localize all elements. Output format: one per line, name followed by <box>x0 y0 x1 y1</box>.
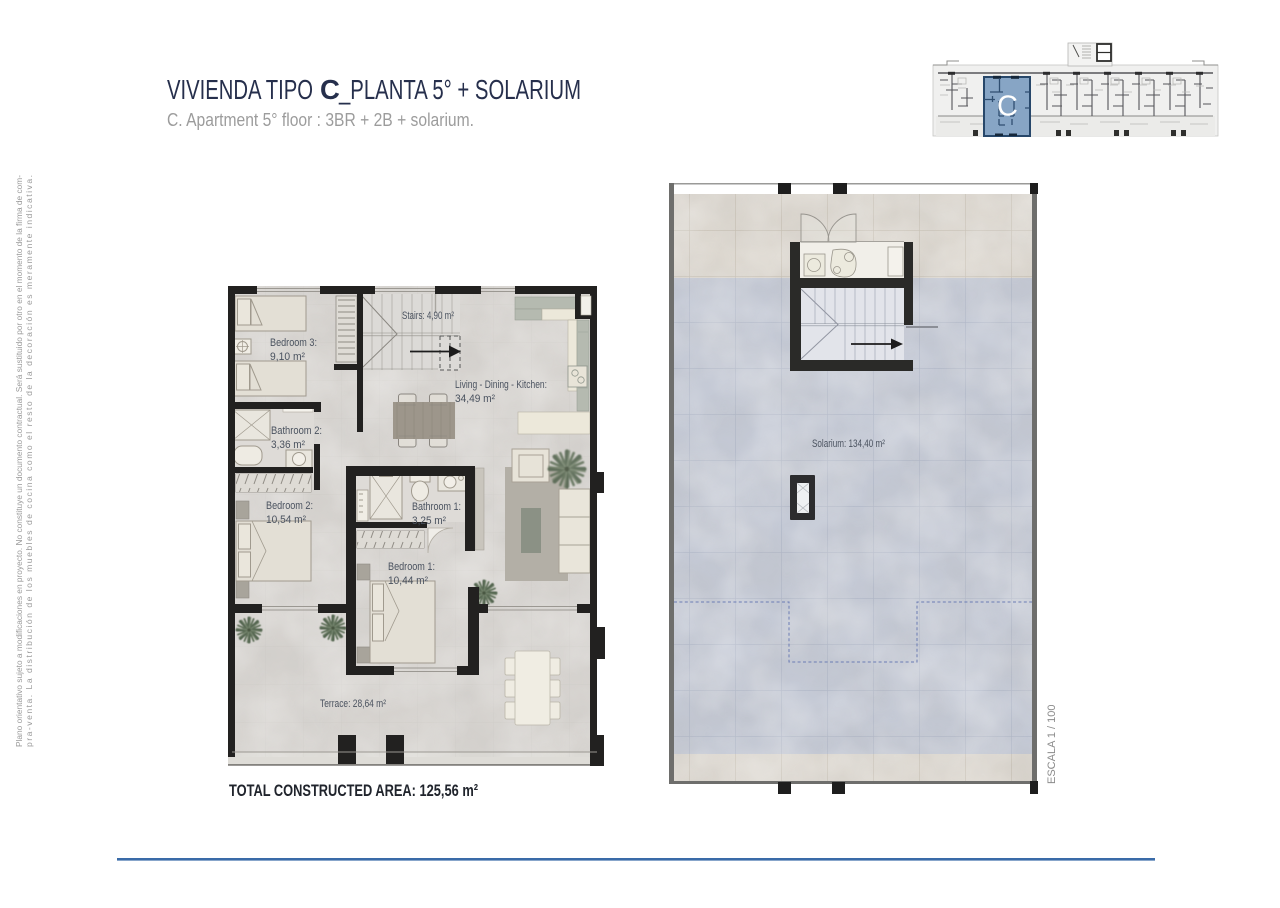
svg-text:C. Apartment 5° floor : 3BR +: C. Apartment 5° floor : 3BR + 2B + solar… <box>167 110 474 130</box>
svg-text:Terrace: 28,64 m²: Terrace: 28,64 m² <box>320 698 386 710</box>
svg-text:pra-venta. La distribución de: pra-venta. La distribución de los mueble… <box>24 175 34 747</box>
svg-text:_PLANTA 5° + SOLARIUM: _PLANTA 5° + SOLARIUM <box>338 74 581 105</box>
svg-text:Living - Dining - Kitchen:: Living - Dining - Kitchen: <box>455 379 547 391</box>
svg-text:10,44 m²: 10,44 m² <box>388 575 428 587</box>
svg-text:Stairs: 4,90 m²: Stairs: 4,90 m² <box>402 310 454 322</box>
svg-text:Bedroom 1:: Bedroom 1: <box>388 561 435 573</box>
svg-text:TOTAL CONSTRUCTED AREA: 125,56: TOTAL CONSTRUCTED AREA: 125,56 m² <box>229 781 478 800</box>
svg-text:Bedroom 3:: Bedroom 3: <box>270 337 317 349</box>
svg-text:Bathroom 2:: Bathroom 2: <box>271 425 322 437</box>
svg-text:C: C <box>997 91 1018 123</box>
svg-text:ESCALA 1 / 100: ESCALA 1 / 100 <box>1046 705 1058 785</box>
svg-text:34,49 m²: 34,49 m² <box>455 393 495 405</box>
svg-text:3,25 m²: 3,25 m² <box>412 515 446 527</box>
svg-text:9,10 m²: 9,10 m² <box>270 351 305 363</box>
svg-text:VIVIENDA TIPO: VIVIENDA TIPO <box>167 74 313 105</box>
svg-text:10,54 m²: 10,54 m² <box>266 514 306 526</box>
svg-text:Bedroom 2:: Bedroom 2: <box>266 500 313 512</box>
svg-text:C: C <box>320 74 340 105</box>
svg-text:3,36 m²: 3,36 m² <box>271 439 305 451</box>
svg-text:Plano orientativo sujeto a mod: Plano orientativo sujeto a modificacione… <box>14 175 24 747</box>
svg-text:Solarium: 134,40 m²: Solarium: 134,40 m² <box>812 438 885 450</box>
svg-text:Bathroom 1:: Bathroom 1: <box>412 501 461 513</box>
